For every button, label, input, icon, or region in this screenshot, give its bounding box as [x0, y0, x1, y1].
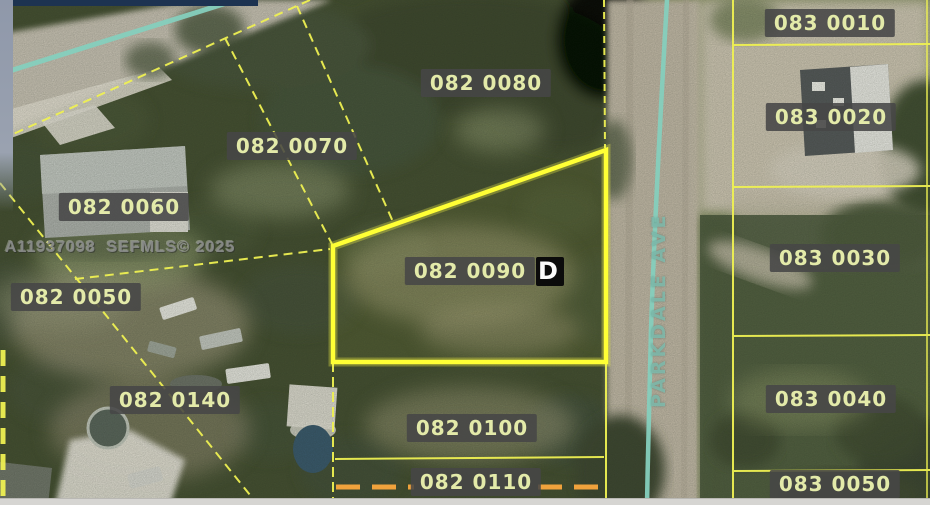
parcel-label-083-0050: 083 0050 [770, 470, 900, 498]
subject-marker: D [536, 257, 564, 286]
parcel-label-083-0040: 083 0040 [766, 385, 896, 413]
parcel-label-082-0100: 082 0100 [407, 414, 537, 442]
parcel-label-082-0060: 082 0060 [59, 193, 189, 221]
parcel-label-082-0090: 082 0090 [405, 257, 535, 285]
watermark: A11937098 SEFMLS© 2025 [5, 239, 235, 257]
street-name-label: PARKDALE AVE [648, 222, 670, 408]
parcel-map: PARKDALE AVE A11937098 SEFMLS© 2025 082 … [0, 0, 930, 505]
parcel-label-082-0080: 082 0080 [421, 69, 551, 97]
parcel-label-083-0010: 083 0010 [765, 9, 895, 37]
parcel-label-082-0070: 082 0070 [227, 132, 357, 160]
parcel-label-082-0050: 082 0050 [11, 283, 141, 311]
parcel-label-083-0030: 083 0030 [770, 244, 900, 272]
screenshot-edge-top [0, 0, 258, 6]
screenshot-edge-bottom [0, 498, 930, 505]
screenshot-edge-left [0, 0, 13, 212]
parcel-label-082-0140: 082 0140 [110, 386, 240, 414]
parcel-label-082-0110: 082 0110 [411, 468, 541, 496]
parcel-label-083-0020: 083 0020 [766, 103, 896, 131]
